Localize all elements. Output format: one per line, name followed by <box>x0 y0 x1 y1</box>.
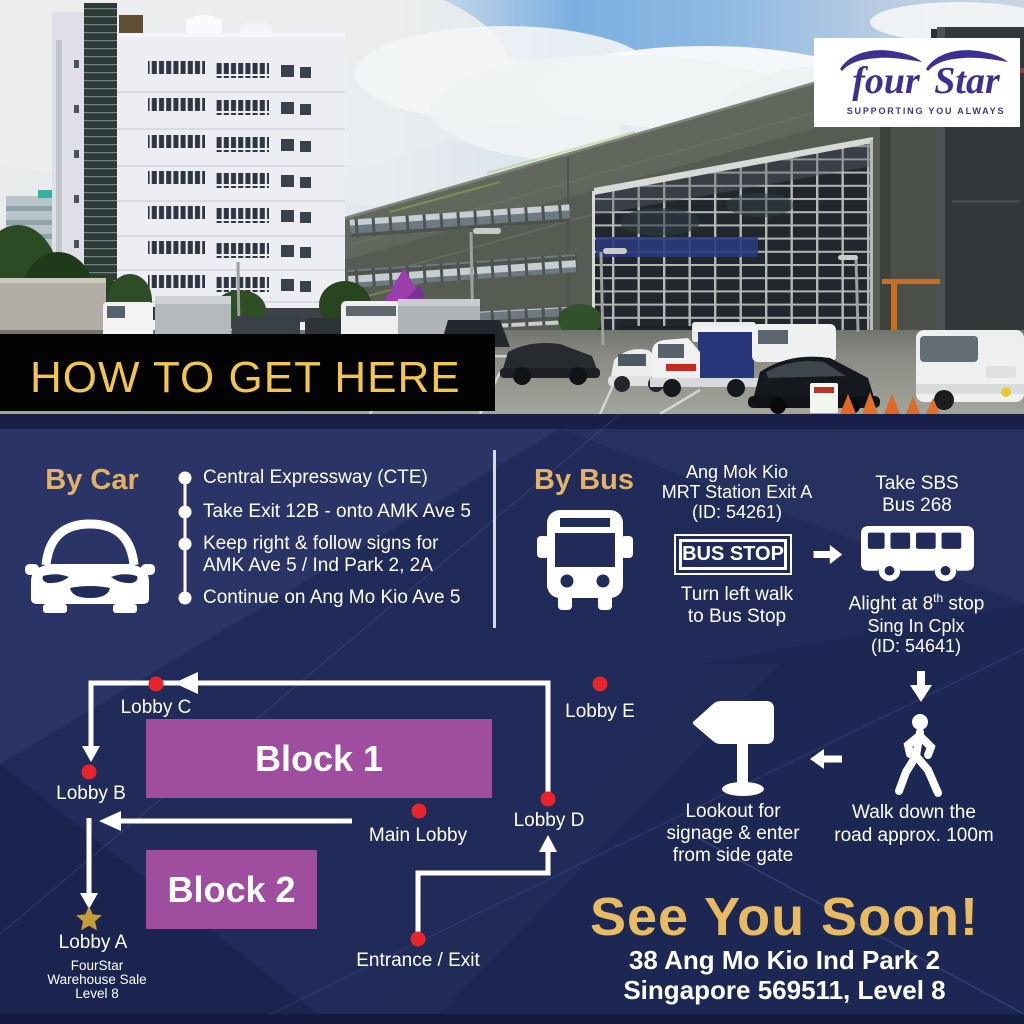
svg-text:four: four <box>852 60 921 102</box>
svg-text:Star: Star <box>934 60 1001 102</box>
svg-text:SUPPORTING YOU ALWAYS: SUPPORTING YOU ALWAYS <box>847 106 1006 116</box>
